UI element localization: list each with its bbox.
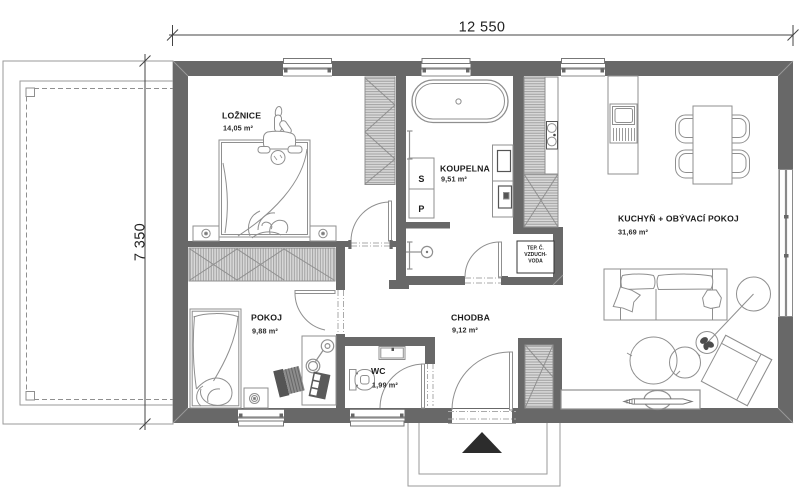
svg-text:TEP. Č.: TEP. Č. xyxy=(527,245,544,252)
svg-text:VZDUCH-: VZDUCH- xyxy=(524,252,547,258)
svg-text:S: S xyxy=(418,174,424,184)
svg-text:CHODBA: CHODBA xyxy=(451,313,491,323)
svg-text:9,51 m²: 9,51 m² xyxy=(441,175,467,184)
svg-text:31,69 m²: 31,69 m² xyxy=(618,228,648,237)
svg-text:9,88 m²: 9,88 m² xyxy=(252,327,278,336)
svg-text:7 350: 7 350 xyxy=(133,223,149,261)
svg-text:VODA: VODA xyxy=(528,259,543,265)
svg-text:KUCHYŇ + OBÝVACÍ POKOJ: KUCHYŇ + OBÝVACÍ POKOJ xyxy=(618,213,739,224)
svg-text:POKOJ: POKOJ xyxy=(251,313,282,323)
svg-text:LOŽNICE: LOŽNICE xyxy=(222,110,261,121)
svg-text:12 550: 12 550 xyxy=(459,20,506,36)
svg-text:WC: WC xyxy=(371,366,386,376)
svg-text:14,05 m²: 14,05 m² xyxy=(223,124,253,133)
svg-text:9,12 m²: 9,12 m² xyxy=(452,326,478,335)
svg-text:1,99 m²: 1,99 m² xyxy=(372,381,398,390)
svg-text:KOUPELNA: KOUPELNA xyxy=(440,164,491,174)
svg-text:P: P xyxy=(418,204,424,214)
